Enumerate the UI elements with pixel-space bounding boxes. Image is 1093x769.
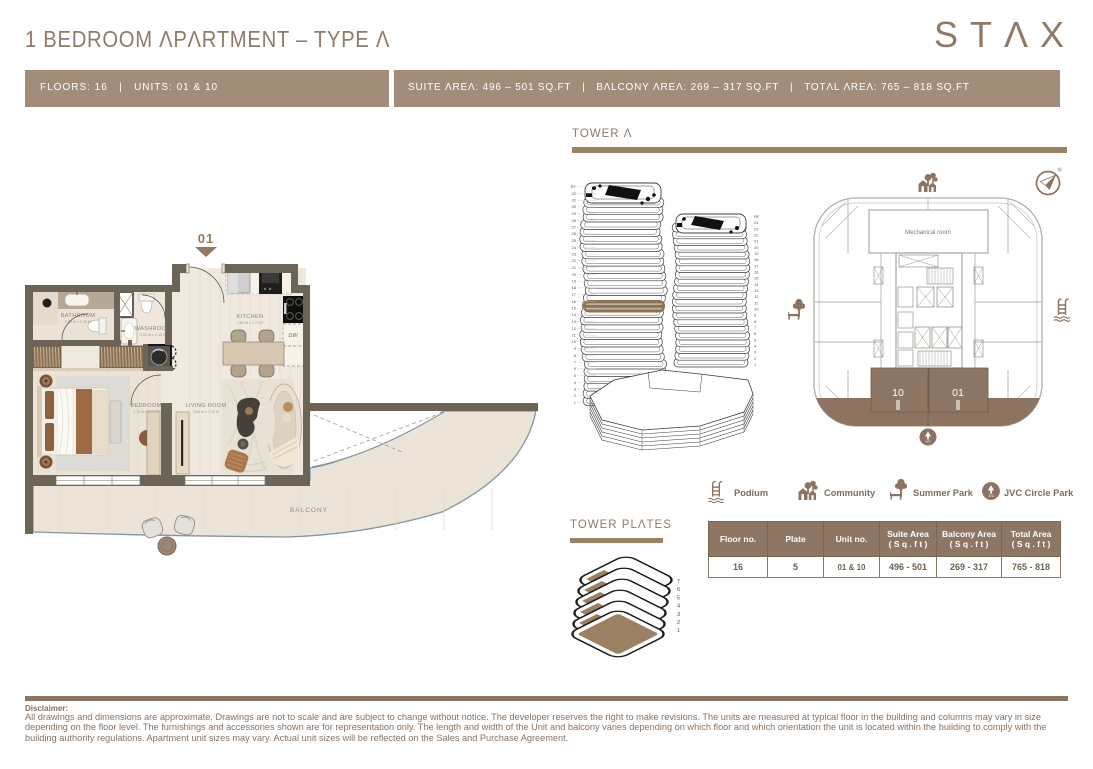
svg-text:4: 4: [574, 380, 577, 385]
svg-text:RF: RF: [571, 184, 577, 189]
svg-text:LIVING ROOM: LIVING ROOM: [185, 403, 226, 409]
svg-text:5: 5: [754, 337, 757, 342]
svg-text:JVC: JVC: [988, 494, 995, 498]
svg-text:20: 20: [754, 245, 759, 250]
svg-text:28: 28: [572, 218, 577, 223]
svg-text:RF: RF: [754, 214, 760, 219]
svg-text:29: 29: [572, 211, 577, 216]
svg-text:3.80 M x 2.70 M: 3.80 M x 2.70 M: [237, 321, 263, 325]
svg-text:4: 4: [754, 344, 757, 349]
svg-text:N: N: [1058, 168, 1062, 174]
svg-text:01: 01: [952, 387, 964, 399]
svg-text:6: 6: [754, 331, 757, 336]
svg-text:19: 19: [754, 251, 759, 256]
svg-text:JVC: JVC: [925, 440, 932, 444]
svg-text:21: 21: [754, 239, 759, 244]
svg-text:8: 8: [574, 353, 577, 358]
svg-text:12: 12: [572, 326, 577, 331]
svg-text:24: 24: [572, 245, 577, 250]
svg-text:32: 32: [572, 191, 577, 196]
svg-text:BALCONY: BALCONY: [290, 507, 328, 514]
svg-text:21: 21: [572, 265, 577, 270]
svg-text:9: 9: [574, 346, 577, 351]
svg-text:11: 11: [572, 333, 577, 338]
svg-text:Mechanical room: Mechanical room: [905, 230, 951, 236]
svg-text:9: 9: [754, 313, 757, 318]
svg-text:KITCHEN: KITCHEN: [237, 314, 264, 320]
svg-text:22: 22: [754, 233, 759, 238]
svg-text:31: 31: [572, 198, 577, 203]
svg-text:23: 23: [754, 226, 759, 231]
svg-text:12: 12: [754, 294, 759, 299]
svg-text:26: 26: [572, 231, 577, 236]
svg-text:18: 18: [754, 257, 759, 262]
svg-text:23: 23: [572, 252, 577, 257]
svg-text:14: 14: [754, 282, 759, 287]
svg-text:17: 17: [572, 292, 577, 297]
svg-text:Podium: Podium: [734, 488, 768, 498]
svg-text:2.00 M x 1.40 M: 2.00 M x 1.40 M: [140, 333, 166, 337]
svg-text:3: 3: [754, 350, 757, 355]
svg-text:JVC Circle Park: JVC Circle Park: [1004, 488, 1074, 498]
svg-text:2: 2: [574, 393, 577, 398]
svg-text:14: 14: [572, 312, 577, 317]
svg-text:15: 15: [572, 306, 577, 311]
svg-text:27: 27: [572, 225, 577, 230]
svg-text:18: 18: [572, 285, 577, 290]
svg-text:16: 16: [754, 270, 759, 275]
svg-text:2: 2: [754, 356, 757, 361]
svg-text:17: 17: [754, 263, 759, 268]
svg-text:11: 11: [754, 300, 759, 305]
svg-text:1: 1: [754, 362, 757, 367]
svg-text:24: 24: [754, 220, 759, 225]
svg-text:10: 10: [754, 307, 759, 312]
svg-text:DW: DW: [288, 333, 298, 339]
svg-text:6: 6: [677, 587, 680, 593]
svg-text:6: 6: [574, 366, 577, 371]
svg-text:7: 7: [754, 325, 757, 330]
svg-text:30: 30: [572, 204, 577, 209]
svg-text:15: 15: [754, 276, 759, 281]
svg-text:10: 10: [892, 387, 904, 399]
svg-text:3.85 M x 3.20 M: 3.85 M x 3.20 M: [193, 410, 219, 414]
svg-text:01: 01: [198, 231, 214, 246]
svg-text:1: 1: [574, 400, 577, 405]
svg-text:10: 10: [572, 339, 577, 344]
svg-text:13: 13: [572, 319, 577, 324]
svg-text:8: 8: [754, 319, 757, 324]
svg-text:20: 20: [572, 272, 577, 277]
svg-text:5: 5: [677, 595, 680, 601]
svg-text:22: 22: [572, 258, 577, 263]
svg-text:19: 19: [572, 279, 577, 284]
svg-text:3: 3: [677, 612, 680, 618]
svg-text:3: 3: [574, 387, 577, 392]
svg-text:Summer Park: Summer Park: [913, 488, 974, 498]
svg-text:2: 2: [677, 620, 680, 626]
svg-text:1: 1: [677, 628, 680, 634]
svg-text:7: 7: [677, 579, 680, 585]
svg-text:7: 7: [574, 360, 577, 365]
svg-text:5: 5: [574, 373, 577, 378]
svg-text:16: 16: [572, 299, 577, 304]
svg-text:BEDROOM: BEDROOM: [130, 403, 161, 409]
svg-text:13: 13: [754, 288, 759, 293]
svg-text:Community: Community: [824, 488, 876, 498]
svg-text:4: 4: [677, 604, 680, 610]
svg-text:25: 25: [572, 238, 577, 243]
svg-text:3.70 M x 3.15 M: 3.70 M x 3.15 M: [133, 410, 159, 414]
